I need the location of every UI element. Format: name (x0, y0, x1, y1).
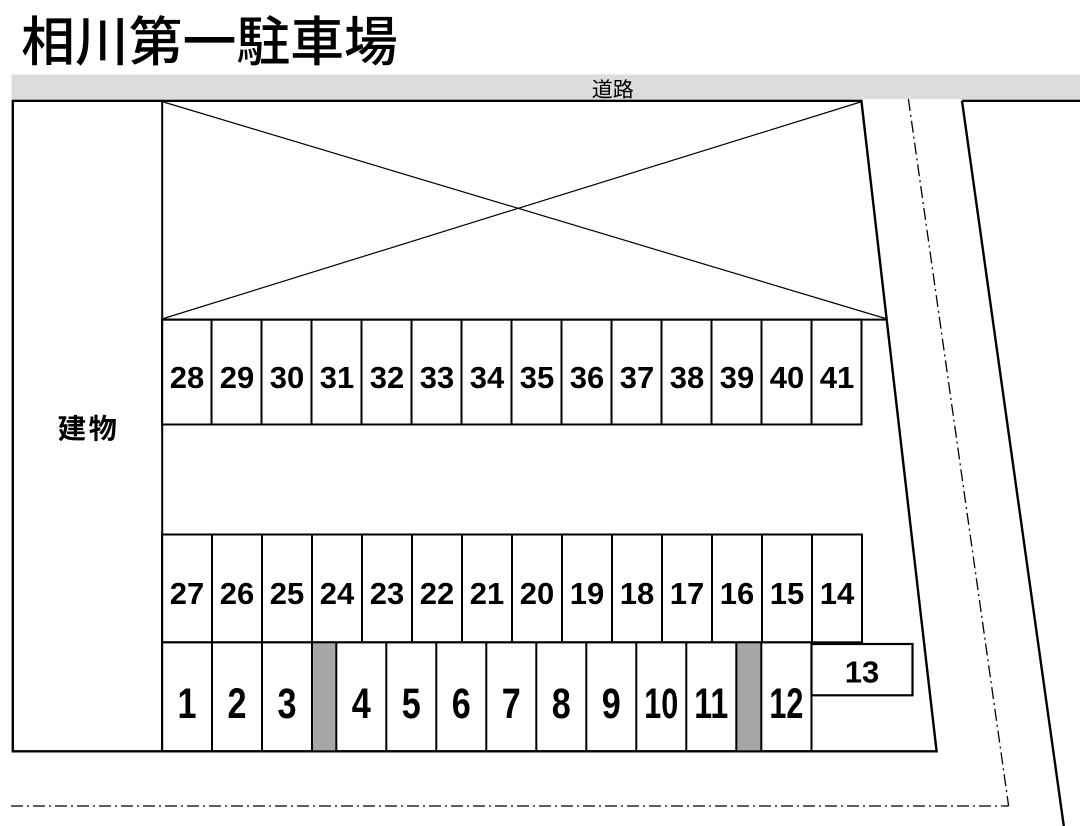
svg-text:36: 36 (570, 360, 604, 395)
svg-text:17: 17 (670, 576, 704, 611)
svg-text:24: 24 (320, 576, 355, 611)
svg-text:9: 9 (602, 680, 621, 728)
svg-text:15: 15 (770, 576, 804, 611)
svg-text:27: 27 (170, 576, 204, 611)
svg-text:3: 3 (278, 680, 297, 728)
svg-text:20: 20 (520, 576, 554, 611)
svg-text:31: 31 (320, 360, 354, 395)
svg-text:13: 13 (845, 655, 879, 690)
svg-text:33: 33 (420, 360, 454, 395)
svg-text:25: 25 (270, 576, 304, 611)
svg-text:19: 19 (570, 576, 604, 611)
svg-text:39: 39 (720, 360, 754, 395)
svg-text:37: 37 (620, 360, 654, 395)
svg-text:40: 40 (770, 360, 804, 395)
svg-text:28: 28 (170, 360, 204, 395)
svg-text:23: 23 (370, 576, 404, 611)
svg-text:8: 8 (552, 680, 571, 728)
svg-text:26: 26 (220, 576, 254, 611)
svg-text:32: 32 (370, 360, 404, 395)
svg-text:2: 2 (228, 680, 247, 728)
svg-text:30: 30 (270, 360, 304, 395)
svg-text:22: 22 (420, 576, 454, 611)
svg-text:7: 7 (502, 680, 521, 728)
svg-text:5: 5 (402, 680, 421, 728)
svg-text:4: 4 (352, 680, 371, 728)
svg-text:35: 35 (520, 360, 554, 395)
svg-text:16: 16 (720, 576, 754, 611)
svg-text:21: 21 (470, 576, 504, 611)
svg-text:1: 1 (178, 680, 197, 728)
svg-text:10: 10 (644, 680, 678, 728)
svg-text:34: 34 (470, 360, 505, 395)
svg-text:6: 6 (452, 680, 471, 728)
svg-text:41: 41 (820, 360, 854, 395)
svg-text:18: 18 (620, 576, 654, 611)
svg-text:12: 12 (769, 680, 803, 728)
svg-text:29: 29 (220, 360, 254, 395)
svg-text:11: 11 (694, 680, 728, 728)
svg-text:14: 14 (820, 576, 855, 611)
svg-text:38: 38 (670, 360, 704, 395)
